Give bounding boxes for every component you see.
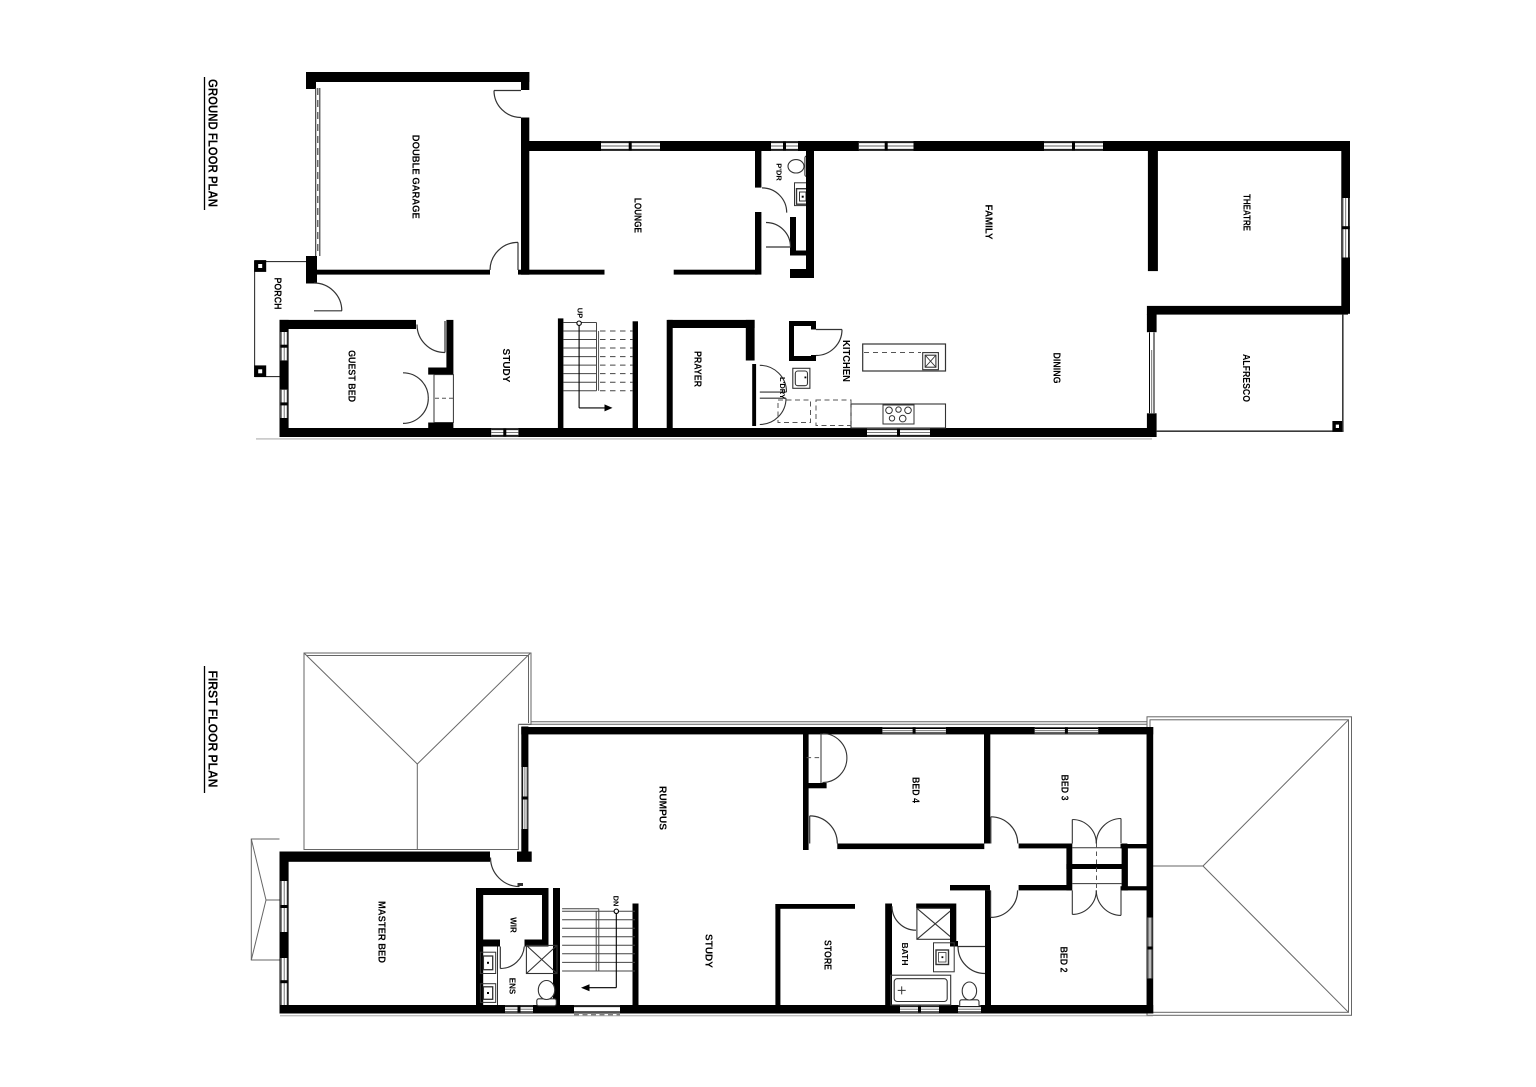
svg-text:DINING: DINING [1051,353,1062,384]
svg-text:WIR: WIR [509,917,518,933]
svg-text:FIRST FLOOR PLAN: FIRST FLOOR PLAN [206,671,221,788]
svg-text:ALFRESCO: ALFRESCO [1240,354,1251,402]
svg-text:RUMPUS: RUMPUS [657,786,668,830]
svg-text:L'DRY: L'DRY [778,377,787,399]
svg-text:FAMILY: FAMILY [983,205,994,240]
svg-text:DN: DN [612,896,621,907]
svg-text:BED 2: BED 2 [1058,947,1069,973]
svg-text:BATH: BATH [900,943,910,966]
svg-text:UP: UP [576,308,585,318]
svg-text:BED 4: BED 4 [910,777,921,803]
svg-text:P'DR: P'DR [775,163,784,181]
svg-text:DOUBLE GARAGE: DOUBLE GARAGE [410,135,421,219]
svg-text:STUDY: STUDY [500,349,511,383]
svg-text:PORCH: PORCH [272,278,283,310]
svg-text:GROUND FLOOR PLAN: GROUND FLOOR PLAN [206,79,221,207]
svg-text:ENS: ENS [508,978,517,995]
svg-text:BED 3: BED 3 [1059,775,1070,801]
svg-text:THEATRE: THEATRE [1241,194,1252,231]
svg-text:STUDY: STUDY [703,934,714,968]
svg-text:LOUNGE: LOUNGE [632,198,643,233]
svg-text:STORE: STORE [822,940,833,970]
svg-text:KITCHEN: KITCHEN [840,340,851,382]
svg-text:GUEST BED: GUEST BED [346,350,357,402]
svg-text:PRAYER: PRAYER [692,351,703,388]
svg-text:MASTER BED: MASTER BED [376,901,387,963]
